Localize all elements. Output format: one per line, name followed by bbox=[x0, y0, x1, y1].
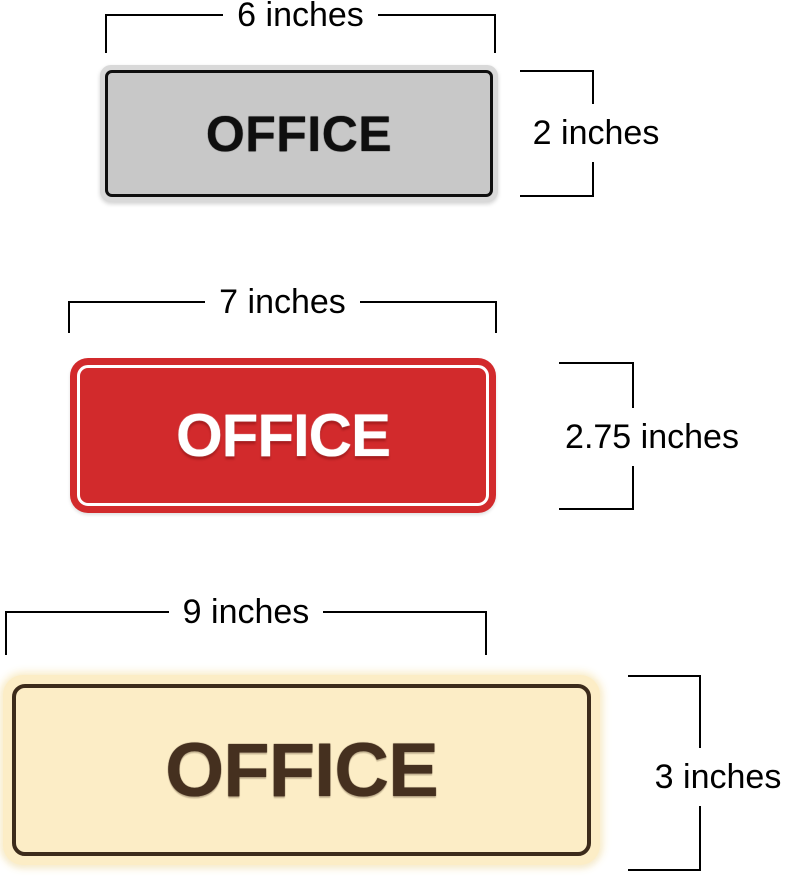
sign-text: OFFICE bbox=[105, 70, 493, 197]
office-sign-small: OFFICE bbox=[100, 65, 498, 202]
sign-text: OFFICE bbox=[70, 358, 496, 513]
width-dimension-label: 6 inches bbox=[105, 0, 496, 32]
height-dimension-tick-top bbox=[628, 675, 701, 677]
office-sign-large: OFFICE bbox=[3, 675, 600, 865]
height-dimension-tick-bottom bbox=[628, 869, 701, 871]
height-dimension-label: 2.75 inches bbox=[560, 408, 744, 466]
height-dimension-label: 3 inches bbox=[650, 748, 787, 806]
office-sign-medium: OFFICE bbox=[70, 358, 496, 513]
height-dimension-label: 2 inches bbox=[528, 104, 665, 162]
height-dimension-tick-bottom bbox=[520, 195, 594, 197]
height-dimension-tick-top bbox=[559, 362, 634, 364]
width-dimension-label: 9 inches bbox=[5, 595, 487, 629]
office-signs-size-diagram: 6 inches OFFICE 2 inches 7 inches OFFICE… bbox=[0, 0, 795, 876]
width-dimension-label: 7 inches bbox=[68, 285, 497, 319]
height-dimension-tick-top bbox=[520, 70, 594, 72]
sign-text: OFFICE bbox=[3, 675, 600, 865]
height-dimension-tick-bottom bbox=[559, 508, 634, 510]
